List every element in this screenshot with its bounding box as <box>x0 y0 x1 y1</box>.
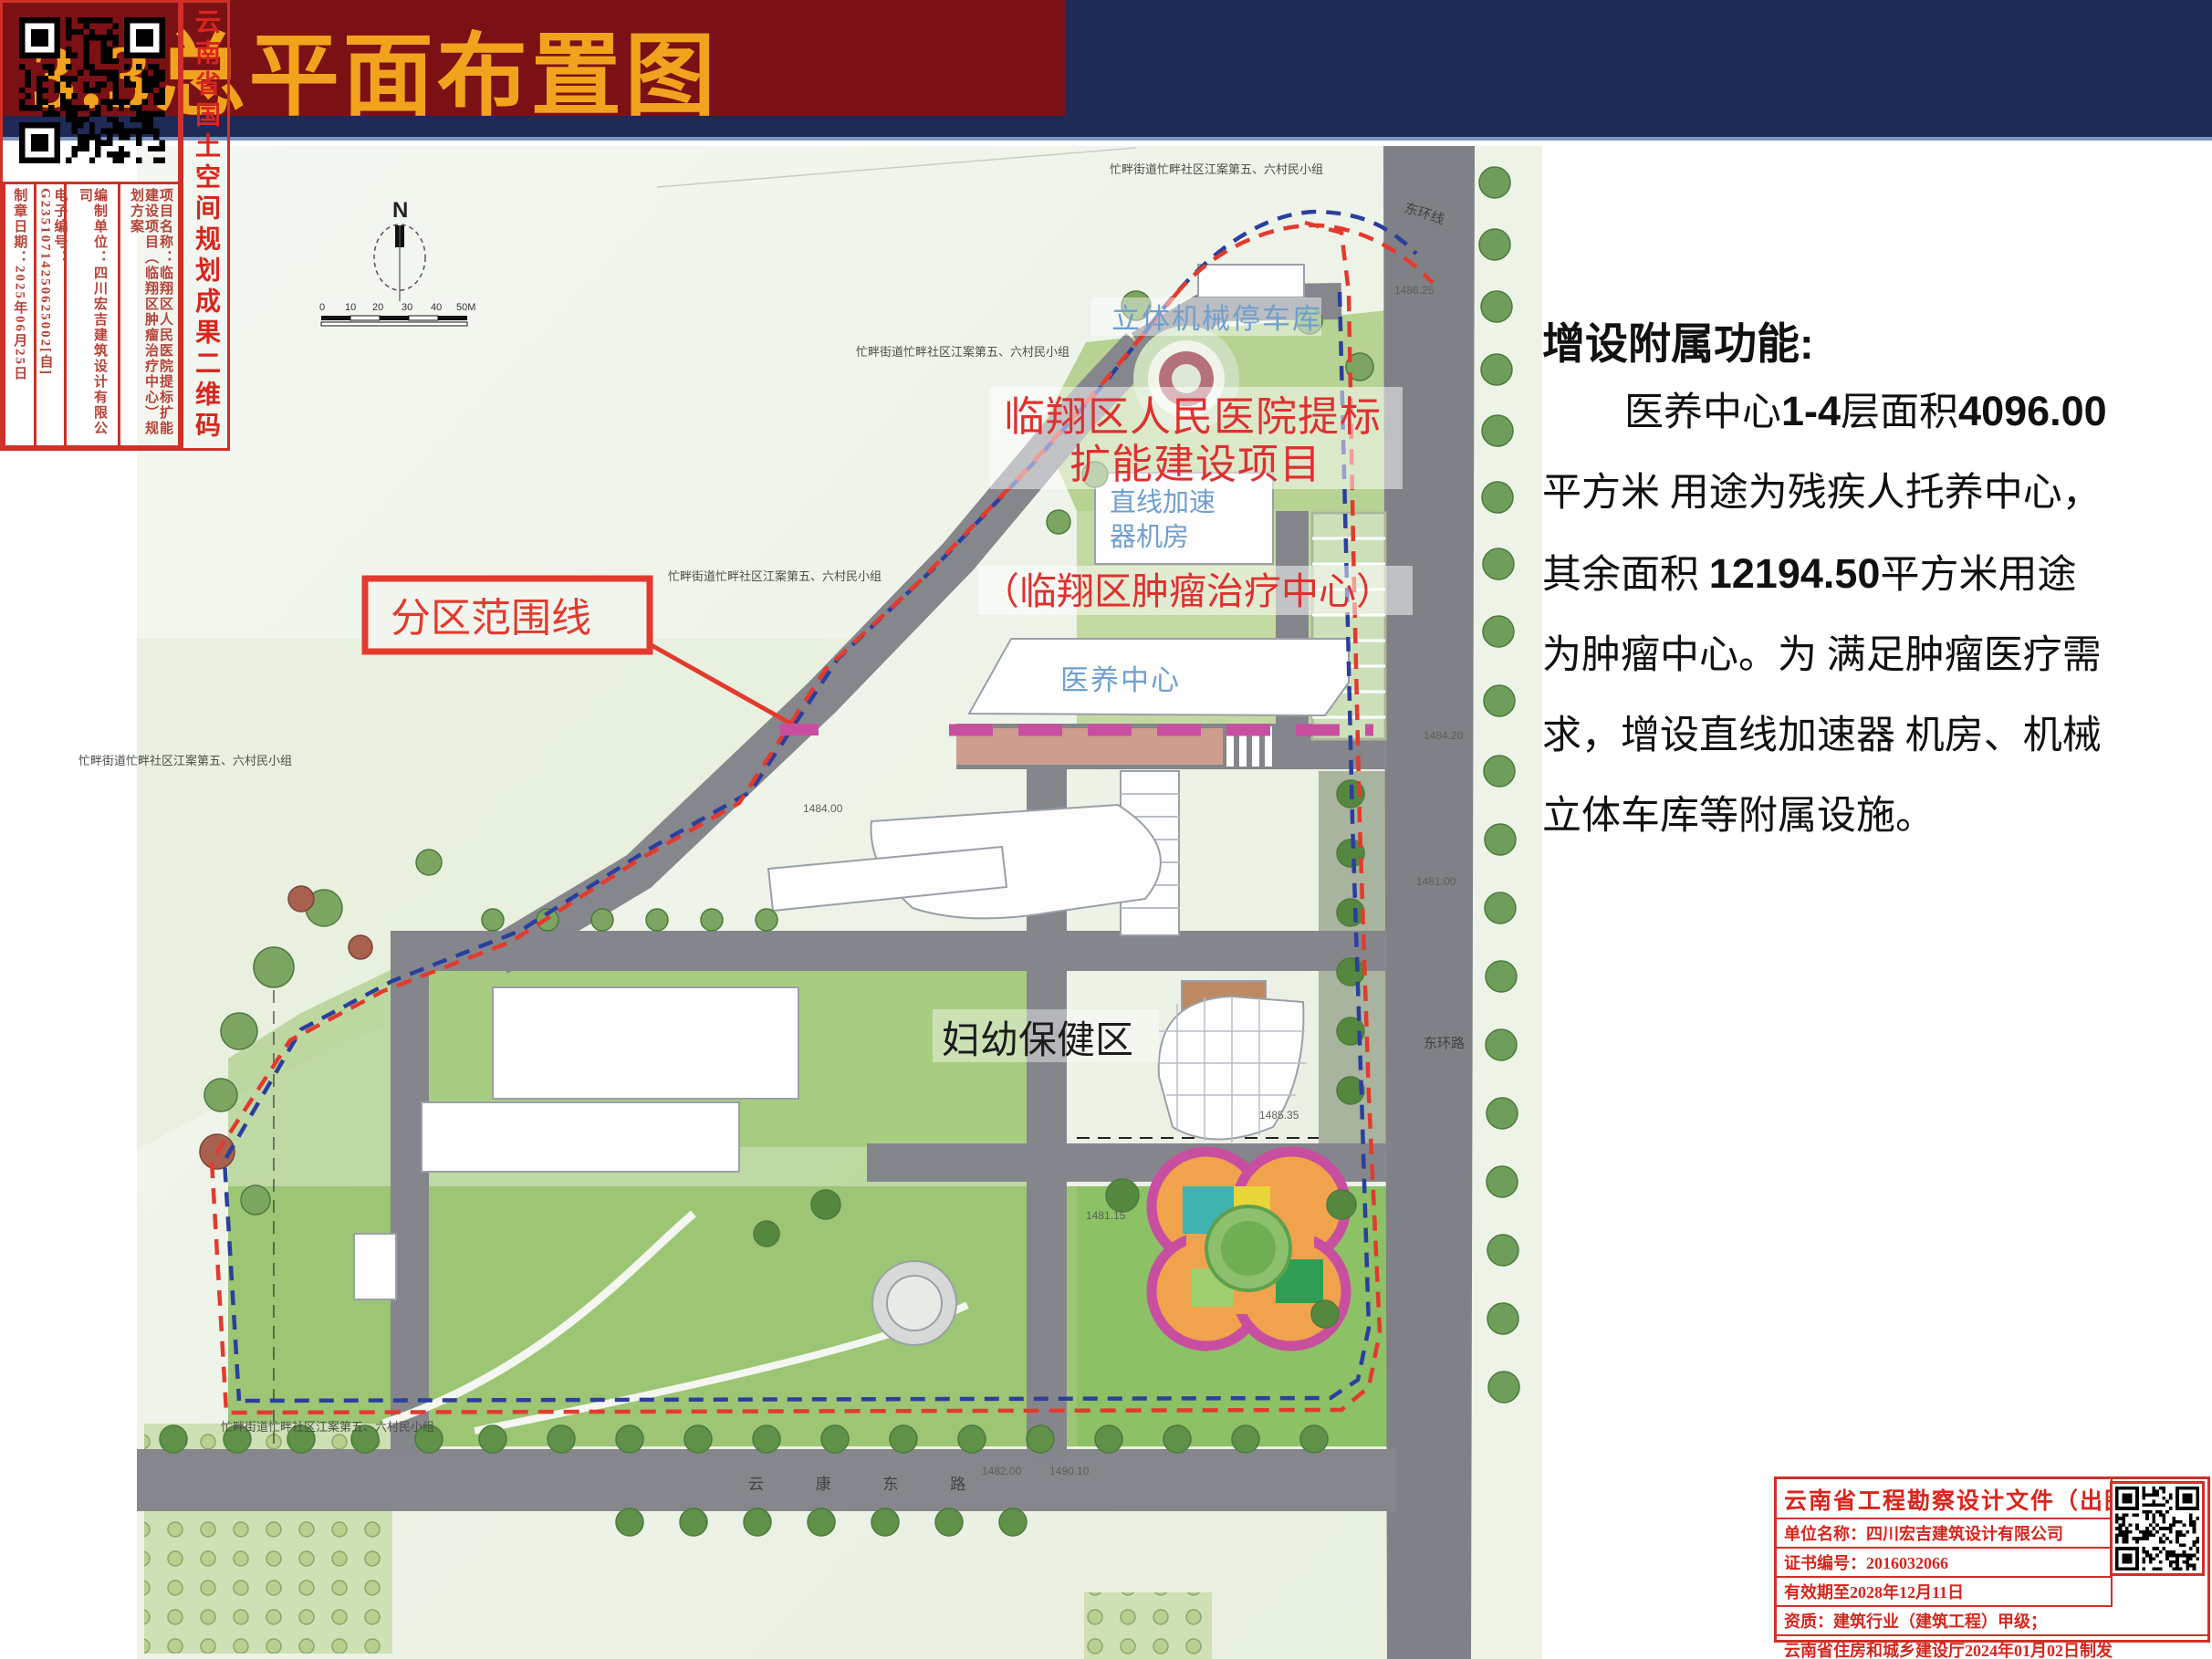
svg-text:1482.00: 1482.00 <box>982 1465 1022 1477</box>
svg-text:1486.25: 1486.25 <box>1394 284 1435 297</box>
road-label-bottom: 云 康 东 路 <box>748 1476 989 1493</box>
svg-text:20: 20 <box>372 302 383 313</box>
planning-cert-frame: 制章日期：2025年06月25日 电子编号：G23510714250625002… <box>0 0 181 451</box>
electronic-no-cell: 电子编号：G23510714250625002[自] <box>35 183 66 447</box>
label-linac-line1: 直线加速 <box>1110 487 1216 517</box>
maternal-building-2 <box>422 1102 739 1172</box>
description-block: 增设附属功能: 医养中心1-4层面积4096.00 平方米 用途为残疾人托养中心… <box>1542 308 2212 857</box>
svg-text:忙畔街道忙畔社区江案第五、六村民小组: 忙畔街道忙畔社区江案第五、六村民小组 <box>668 569 882 583</box>
planning-cert-table: 制章日期：2025年06月25日 电子编号：G23510714250625002… <box>3 182 183 448</box>
description-line-5: 求，增设直线加速器 机房、机械 <box>1542 696 2212 777</box>
description-line-3: 其余面积 12194.50平方米用途 <box>1542 534 2212 616</box>
label-partition: 分区范围线 <box>391 596 591 641</box>
svg-text:1484.00: 1484.00 <box>803 802 843 815</box>
label-parking-garage: 立体机械停车库 <box>1111 303 1322 335</box>
planning-cert-title: 云南省国土空间规划成果二维码 <box>187 8 224 443</box>
svg-text:忙畔街道忙畔社区江案第五、六村民小组: 忙畔街道忙畔社区江案第五、六村民小组 <box>856 345 1069 359</box>
seal-date-cell: 制章日期：2025年06月25日 <box>5 183 36 447</box>
label-elder-center: 医养中心 <box>1060 664 1181 696</box>
stamp-qr-code <box>2110 1481 2205 1576</box>
stamp-valid: 有效期至2028年12月11日 <box>1777 1578 2113 1607</box>
stamp-cert-no: 证书编号：2016032066 <box>1777 1549 2113 1578</box>
svg-text:忙畔街道忙畔社区江案第五、六村民小组: 忙畔街道忙畔社区江案第五、六村民小组 <box>1110 162 1323 176</box>
project-name-cell: 项目名称：临翔区人民医院提标扩能建设项目（临翔区肿瘤治疗中心）规划方案 <box>120 183 183 447</box>
svg-text:40: 40 <box>431 302 442 313</box>
slide-page: 3.3总平面布置图 <box>0 0 2212 1659</box>
planning-qr-certificate: 制章日期：2025年06月25日 电子编号：G23510714250625002… <box>0 0 230 451</box>
parking-garage-building <box>1198 265 1304 297</box>
svg-text:忙畔街道忙畔社区江案第五、六村民小组: 忙畔街道忙畔社区江案第五、六村民小组 <box>78 754 292 767</box>
design-unit-cell: 编制单位：四川宏吉建筑设计有限公司 <box>66 183 120 447</box>
planning-cert-title-column: 云南省国土空间规划成果二维码 <box>181 0 230 451</box>
label-oncology: （临翔区肿瘤治疗中心） <box>982 570 1393 612</box>
compass-n-label: N <box>392 198 408 223</box>
label-maternal-zone: 妇幼保健区 <box>942 1018 1133 1061</box>
svg-text:1490.10: 1490.10 <box>1049 1465 1090 1477</box>
description-line-4: 为肿瘤中心。为 满足肿瘤医疗需 <box>1542 616 2212 696</box>
svg-text:1481.00: 1481.00 <box>1416 875 1456 888</box>
svg-text:50M: 50M <box>456 302 475 313</box>
svg-text:0: 0 <box>319 302 325 313</box>
svg-text:1485.35: 1485.35 <box>1259 1109 1299 1122</box>
description-line-6: 立体车库等附属设施。 <box>1542 777 2212 857</box>
svg-text:10: 10 <box>345 302 356 313</box>
svg-text:忙畔街道忙畔社区江案第五、六村民小组: 忙畔街道忙畔社区江案第五、六村民小组 <box>221 1420 434 1434</box>
drawing-stamp: 云南省工程勘察设计文件（出图）专用章 单位名称：四川宏吉建筑设计有限公司 证书编… <box>1774 1476 2210 1643</box>
description-line-1: 医养中心1-4层面积4096.00 <box>1542 371 2212 454</box>
svg-text:30: 30 <box>402 302 412 313</box>
svg-text:1481.15: 1481.15 <box>1086 1209 1126 1222</box>
description-heading: 增设附属功能: <box>1542 308 2212 371</box>
label-project-line2: 扩能建设项目 <box>1069 441 1321 487</box>
small-building-sw <box>354 1234 396 1299</box>
stamp-qualification: 资质：建筑行业（建筑工程）甲级； <box>1777 1607 2207 1636</box>
stamp-title: 云南省工程勘察设计文件（出图）专用章 <box>1777 1479 2113 1519</box>
road-label-east-ring-bottom: 东环路 <box>1424 1036 1465 1051</box>
maternal-building-1 <box>493 987 798 1099</box>
label-linac-line2: 器机房 <box>1110 522 1189 552</box>
stamp-issued: 云南省住房和城乡建设厅2024年01月02日制发 <box>1777 1636 2207 1659</box>
label-project-line1: 临翔区人民医院提标 <box>1004 393 1382 440</box>
description-line-2: 平方米 用途为残疾人托养中心， <box>1542 454 2212 534</box>
stamp-unit: 单位名称：四川宏吉建筑设计有限公司 <box>1777 1519 2113 1549</box>
site-plan-map: N 010 2030 4050M 忙畔街道忙畔社区江案第五、六村民小组 忙畔街道… <box>0 140 1551 1659</box>
planning-qr-code <box>19 12 165 169</box>
svg-text:1484.20: 1484.20 <box>1424 729 1464 742</box>
